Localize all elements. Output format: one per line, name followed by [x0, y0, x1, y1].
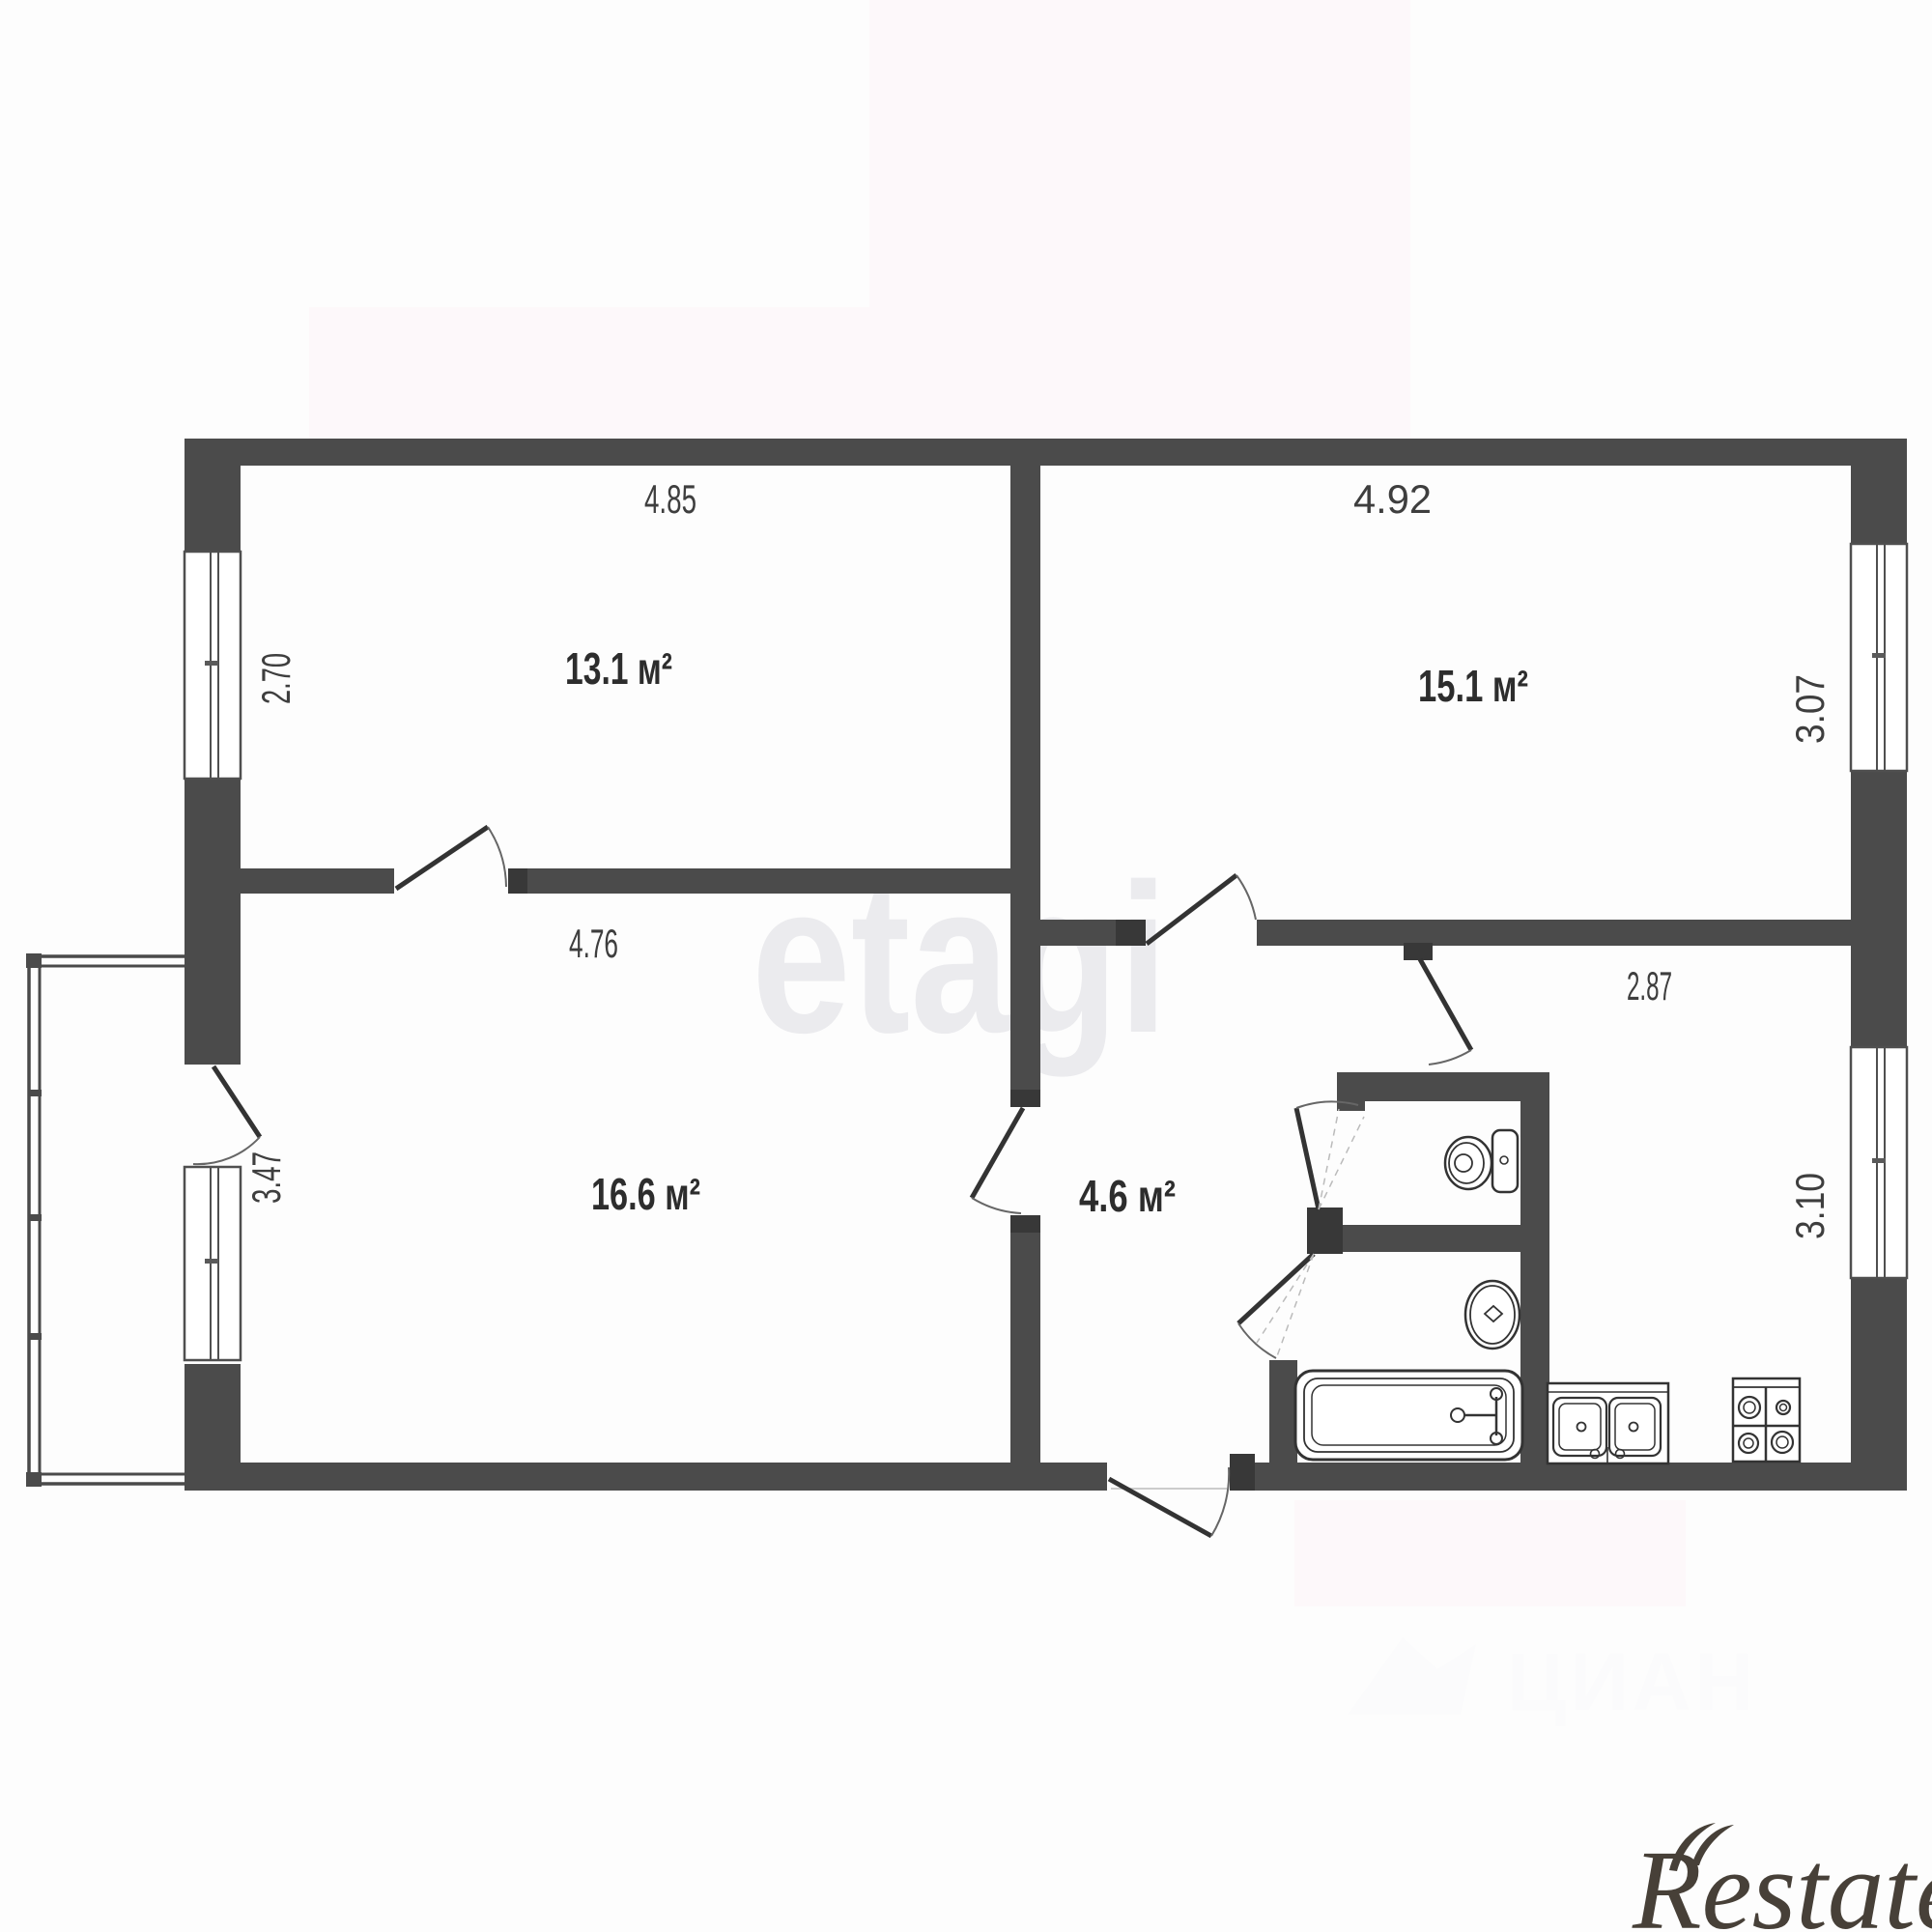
svg-text:ЦИАН: ЦИАН [1507, 1636, 1757, 1727]
svg-text:2.87: 2.87 [1627, 963, 1672, 1009]
svg-text:3.10: 3.10 [1787, 1173, 1833, 1239]
svg-text:4.92: 4.92 [1353, 476, 1432, 522]
svg-text:4.6 м²: 4.6 м² [1079, 1171, 1176, 1221]
svg-text:3.07: 3.07 [1787, 674, 1833, 744]
svg-text:3.47: 3.47 [243, 1151, 289, 1204]
svg-text:2.70: 2.70 [253, 653, 298, 704]
svg-text:13.1 м²: 13.1 м² [565, 643, 672, 694]
svg-text:4.85: 4.85 [644, 476, 696, 522]
svg-text:4.76: 4.76 [569, 921, 618, 966]
svg-text:16.6 м²: 16.6 м² [591, 1169, 700, 1219]
svg-text:15.1 м²: 15.1 м² [1418, 661, 1528, 711]
svg-text:Restate: Restate [1632, 1827, 1932, 1932]
